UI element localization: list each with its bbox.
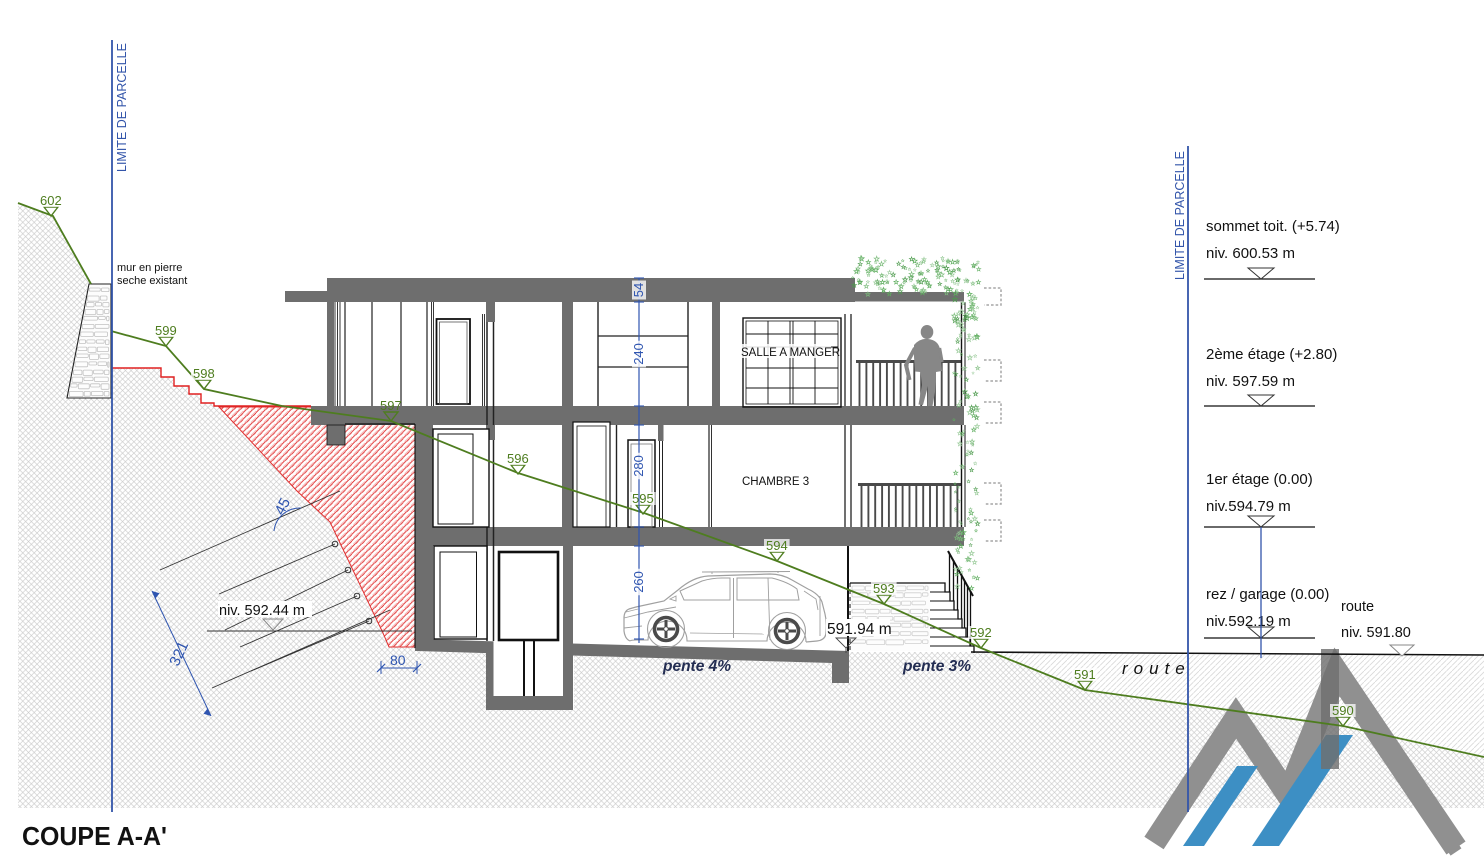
svg-text:1er étage (0.00): 1er étage (0.00) [1206,471,1313,488]
svg-text:mur en pierre: mur en pierre [117,262,182,274]
svg-text:597: 597 [380,398,402,413]
svg-text:seche existant: seche existant [117,275,187,287]
svg-text:route: route [1341,599,1374,615]
svg-text:2ème étage (+2.80): 2ème étage (+2.80) [1206,346,1337,363]
svg-text:240: 240 [631,343,646,365]
svg-text:590: 590 [1332,703,1354,718]
svg-text:80: 80 [390,652,406,668]
svg-text:niv.594.79 m: niv.594.79 m [1206,498,1291,515]
svg-text:260: 260 [631,571,646,593]
svg-text:LIMITE DE PARCELLE: LIMITE DE PARCELLE [1173,151,1187,280]
svg-text:594: 594 [766,538,788,553]
svg-text:niv. 597.59 m: niv. 597.59 m [1206,373,1295,390]
svg-text:pente 3%: pente 3% [902,658,971,675]
svg-text:CHAMBRE 3: CHAMBRE 3 [742,476,809,488]
svg-text:599: 599 [155,323,177,338]
svg-text:595: 595 [632,491,654,506]
svg-text:rez / garage (0.00): rez / garage (0.00) [1206,586,1329,603]
svg-text:596: 596 [507,451,529,466]
svg-text:niv. 591.80: niv. 591.80 [1341,625,1411,641]
svg-text:602: 602 [40,193,62,208]
svg-text:591: 591 [1074,667,1096,682]
svg-text:niv. 592.44 m: niv. 592.44 m [219,603,305,619]
svg-text:54: 54 [631,283,646,297]
svg-text:SALLE A MANGER: SALLE A MANGER [741,347,840,359]
svg-text:592: 592 [970,625,992,640]
svg-text:COUPE A-A': COUPE A-A' [22,821,167,851]
svg-text:280: 280 [631,455,646,477]
svg-text:route: route [1122,659,1191,678]
svg-text:niv. 600.53 m: niv. 600.53 m [1206,245,1295,262]
svg-text:593: 593 [873,581,895,596]
svg-text:591.94 m: 591.94 m [827,621,892,638]
svg-text:598: 598 [193,366,215,381]
svg-text:LIMITE DE PARCELLE: LIMITE DE PARCELLE [115,43,129,172]
svg-text:pente 4%: pente 4% [662,658,731,675]
svg-text:sommet toit. (+5.74): sommet toit. (+5.74) [1206,218,1340,235]
